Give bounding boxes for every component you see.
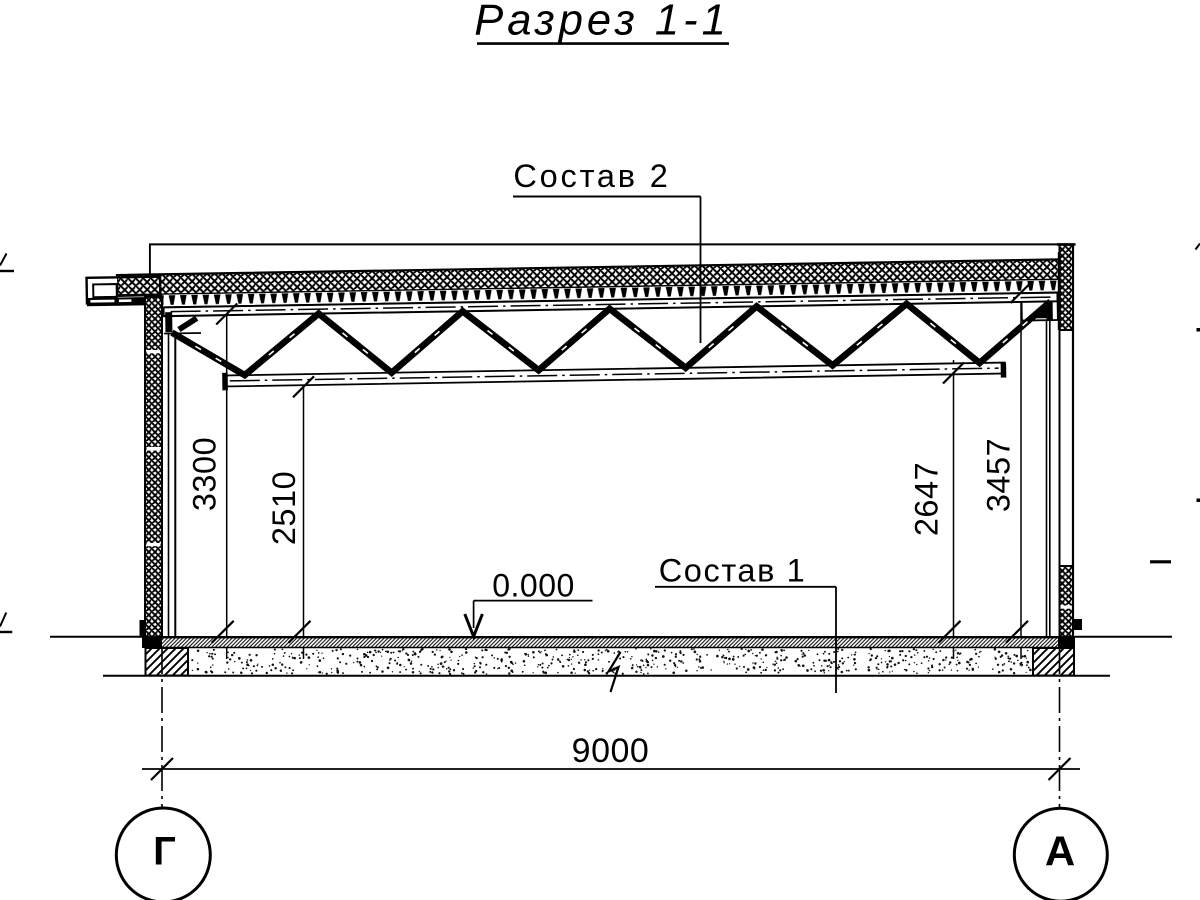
svg-text:Разрез 1-1: Разрез 1-1 <box>474 0 730 45</box>
svg-text:2647: 2647 <box>909 462 945 536</box>
svg-text:А: А <box>1045 828 1075 875</box>
svg-text:3300: 3300 <box>187 437 223 511</box>
svg-text:3457: 3457 <box>981 438 1017 512</box>
svg-text:Состав 1: Состав 1 <box>659 553 807 589</box>
svg-text:9000: 9000 <box>572 732 650 770</box>
svg-text:Состав 2: Состав 2 <box>513 158 670 194</box>
svg-text:Г: Г <box>153 830 176 874</box>
svg-text:2510: 2510 <box>266 471 302 545</box>
svg-text:0.000: 0.000 <box>492 568 575 604</box>
